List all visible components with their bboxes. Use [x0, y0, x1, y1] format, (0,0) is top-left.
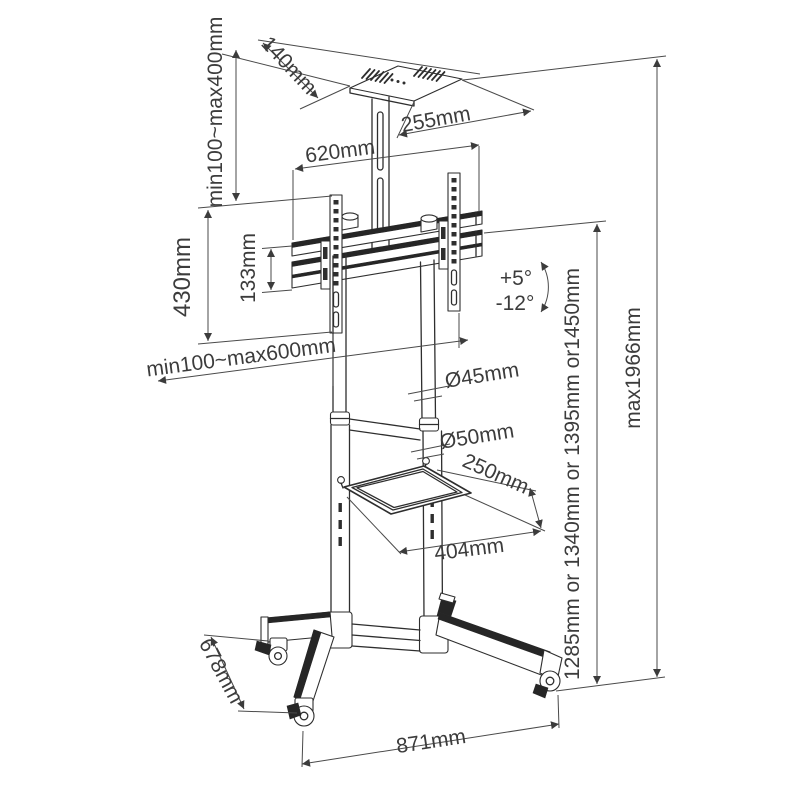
leg-front-right: [436, 613, 562, 681]
dim-base-width: 871mm: [395, 725, 468, 758]
tilt-knob-right: [421, 215, 437, 232]
dimension-labels: 140mm 255mm min100~max400mm 620mm 430mm …: [145, 17, 645, 759]
lower-poles: [331, 425, 443, 620]
dim-lower-pole-diameter: Ø50mm: [438, 419, 515, 453]
dim-base-depth: 678mm: [194, 635, 247, 708]
dim-upper-pole-diameter: Ø45mm: [443, 358, 520, 392]
dim-rail-spacing: 133mm: [237, 233, 260, 303]
dim-max-height: max1966mm: [622, 307, 645, 428]
diagram-svg: 140mm 255mm min100~max400mm 620mm 430mm …: [0, 0, 800, 800]
caster-rear-left: [255, 638, 287, 665]
dim-tilt-up: +5°: [500, 267, 532, 290]
caster-front-right: [533, 671, 560, 698]
dim-top-shelf-width: 255mm: [399, 102, 472, 137]
top-av-shelf: [350, 66, 462, 106]
dim-tilt-down: -12°: [496, 292, 535, 315]
vesa-bracket-left: [321, 195, 342, 333]
pole-crossbar: [350, 419, 421, 440]
tilt-knob-left: [342, 213, 358, 230]
pole-collar-right: [420, 418, 439, 431]
tv-cart-dimension-diagram: 140mm 255mm min100~max400mm 620mm 430mm …: [0, 0, 800, 800]
dim-top-shelf-depth: 140mm: [256, 32, 321, 99]
base-hubs: [327, 612, 449, 653]
dim-shelf-width: 404mm: [433, 534, 505, 565]
cart-structure: [255, 66, 562, 726]
dimension-lines: [158, 40, 666, 767]
dim-shelf-depth: 250mm: [459, 449, 532, 498]
dim-bracket-height: 430mm: [169, 237, 196, 317]
caster-lock-rear-left: [255, 641, 271, 655]
dim-mount-rail-length: 620mm: [304, 136, 376, 168]
dim-column-drop-range: min100~max400mm: [204, 17, 227, 208]
vesa-bracket-right: [439, 173, 460, 311]
leg-front-left: [294, 630, 334, 704]
pole-collar-left: [331, 412, 350, 425]
media-shelf: [338, 458, 471, 514]
tilt-arc: [541, 262, 548, 312]
caster-front-left: [287, 698, 314, 726]
dim-vesa-width-range: min100~max600mm: [145, 334, 337, 382]
dim-shelf-height-options: 1285mm or 1340mm or 1395mm or1450mm: [561, 268, 584, 680]
